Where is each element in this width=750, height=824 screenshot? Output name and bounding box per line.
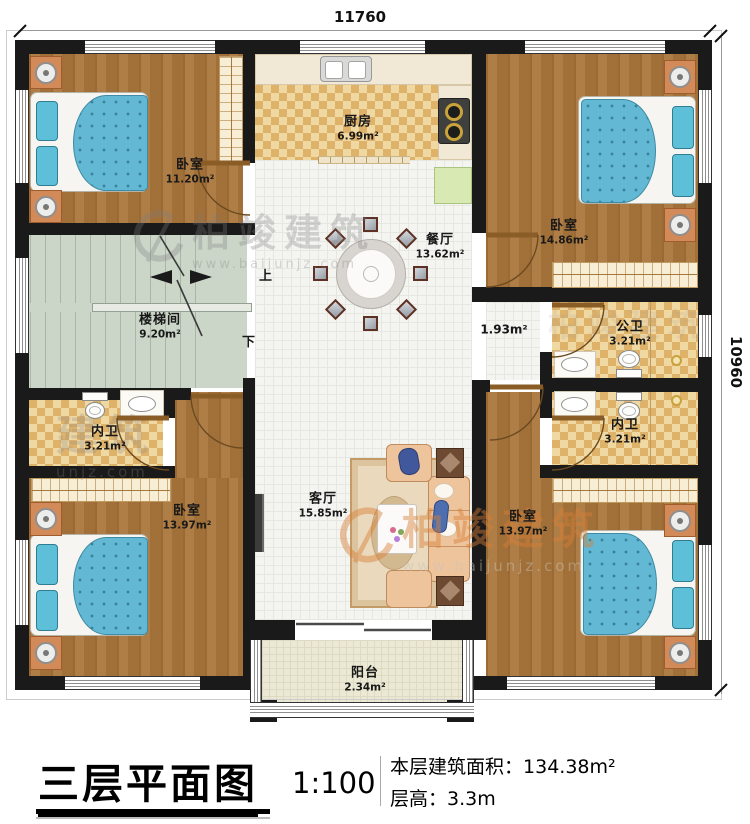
nightstand bbox=[664, 636, 696, 669]
room-label-bedroom-top-left: 卧室11.20m² bbox=[166, 157, 215, 186]
bath-sink bbox=[128, 396, 156, 412]
dining-cabinet bbox=[434, 167, 472, 204]
wall-bedroomTR-south bbox=[472, 287, 698, 302]
dimension-top-value: 11760 bbox=[334, 8, 386, 26]
bed-bottom-right bbox=[580, 530, 696, 636]
window-top-bedroomTR bbox=[525, 40, 665, 54]
floor-height-line: 层高：3.3m bbox=[390, 784, 496, 811]
toilet-tank bbox=[616, 392, 642, 401]
window-bottom-bedroomBR bbox=[507, 676, 655, 690]
shower-head bbox=[671, 355, 682, 366]
bed-bottom-left bbox=[30, 534, 148, 636]
side-table bbox=[436, 448, 464, 478]
nightstand bbox=[30, 190, 62, 223]
stair-handrail bbox=[92, 303, 252, 312]
wall-vestibuleR-west bbox=[472, 380, 486, 620]
kitchen-sink bbox=[320, 56, 372, 82]
stair-down-label: 下 bbox=[242, 335, 256, 351]
toilet-bowl bbox=[85, 402, 105, 419]
window-top-kitchen bbox=[300, 40, 425, 54]
floor-height-label: 层高： bbox=[390, 788, 447, 810]
dimension-line-top bbox=[20, 30, 712, 31]
window-left-bedroomBL bbox=[15, 540, 29, 625]
closet-bedroomBL bbox=[31, 478, 171, 502]
wall-living-south-right bbox=[432, 620, 486, 640]
room-label-bedroom-bottom-left: 卧室13.97m² bbox=[163, 503, 212, 532]
window-right-bedroomBR bbox=[698, 545, 712, 640]
room-label-balcony: 阳台2.34m² bbox=[344, 665, 385, 694]
room-label-living: 客厅15.85m² bbox=[299, 491, 348, 520]
closet-bedroomTL bbox=[219, 56, 243, 162]
bed-top-left bbox=[30, 92, 148, 192]
wall-bedroomTL-south bbox=[15, 223, 255, 235]
shower-partition bbox=[650, 392, 651, 465]
room-label-kitchen: 厨房6.99m² bbox=[337, 114, 378, 143]
window-bottom-bedroomBL bbox=[65, 676, 200, 690]
room-label-bath-inner-left: 内卫3.21m² bbox=[84, 424, 125, 453]
dining-table bbox=[336, 239, 406, 309]
nightstand bbox=[30, 636, 62, 670]
dining-chair bbox=[313, 266, 328, 281]
room-label-stairwell: 楼梯间9.20m² bbox=[139, 312, 181, 341]
room-label-bedroom-top-right: 卧室14.86m² bbox=[540, 218, 589, 247]
armchair bbox=[386, 570, 432, 608]
kitchen-stove bbox=[438, 98, 470, 144]
window-left-stairwell bbox=[15, 258, 29, 353]
bed-top-right bbox=[578, 96, 696, 204]
room-label-hallway: 1.93m² bbox=[480, 323, 527, 338]
wall-bathL-east-upper bbox=[163, 388, 175, 418]
wall-bathL-south bbox=[15, 466, 175, 478]
nightstand bbox=[664, 504, 696, 537]
kitchen-threshold bbox=[318, 156, 410, 164]
wall-bathR-west-lower bbox=[540, 392, 552, 418]
wall-bedroomBR-north bbox=[540, 465, 698, 478]
plan-scale: 1:100 bbox=[292, 766, 376, 800]
shower-head bbox=[671, 395, 682, 406]
closet-bedroomTR bbox=[552, 262, 698, 288]
tv bbox=[255, 494, 264, 552]
wall-kitchen-east bbox=[472, 54, 486, 233]
room-label-dining: 餐厅13.62m² bbox=[416, 232, 465, 261]
side-table bbox=[436, 576, 464, 606]
stair-up-label: 上 bbox=[259, 269, 273, 285]
floor-height-value: 3.3m bbox=[447, 788, 496, 810]
balcony-rail-right bbox=[462, 640, 474, 702]
dining-chair bbox=[363, 316, 378, 331]
bath-sink bbox=[561, 357, 588, 372]
nightstand bbox=[664, 60, 696, 94]
balcony-rail-left bbox=[250, 640, 262, 702]
floor-plan-page: 11760 10960 卧室11.20m² 厨房6.99m² 卧室14.86m²… bbox=[0, 0, 750, 824]
toilet-tank bbox=[82, 392, 108, 401]
title-underline-secondary bbox=[36, 817, 270, 819]
floor-area-label: 本层建筑面积： bbox=[390, 756, 523, 778]
dining-chair bbox=[413, 266, 428, 281]
plan-title: 三层平面图 bbox=[38, 750, 258, 817]
dimension-line-right bbox=[721, 36, 722, 694]
room-label-bath-inner-right: 内卫3.21m² bbox=[604, 417, 645, 446]
window-top-bedroomTL bbox=[85, 40, 215, 54]
nightstand bbox=[30, 56, 62, 89]
wall-bedroomTL-kitchen bbox=[243, 54, 255, 163]
room-label-bath-public: 公卫3.21m² bbox=[609, 319, 650, 348]
wall-bathR-west-mid bbox=[540, 352, 552, 378]
wall-living-west bbox=[243, 378, 255, 676]
window-right-bedroomTR bbox=[698, 90, 712, 183]
window-right-bath bbox=[698, 315, 712, 357]
nightstand bbox=[664, 208, 696, 242]
caption-separator bbox=[380, 756, 381, 806]
floor-area-value: 134.38m² bbox=[523, 756, 616, 778]
nightstand bbox=[30, 502, 62, 536]
window-left-bedroomTL bbox=[15, 90, 29, 183]
wall-vestibuleR-north-stub bbox=[472, 380, 490, 392]
dimension-right-value: 10960 bbox=[727, 336, 745, 388]
coffee-table bbox=[377, 504, 417, 554]
dining-chair bbox=[363, 217, 378, 232]
title-underline bbox=[36, 809, 270, 814]
floor-area-line: 本层建筑面积：134.38m² bbox=[390, 752, 616, 779]
closet-bedroomBR bbox=[552, 478, 698, 503]
wall-bath-divider bbox=[540, 378, 698, 392]
toilet-bowl bbox=[618, 350, 640, 368]
toilet-tank bbox=[616, 369, 642, 378]
bath-sink bbox=[561, 397, 588, 412]
room-label-bedroom-bottom-right: 卧室13.97m² bbox=[499, 509, 548, 538]
balcony-rail-bottom bbox=[250, 702, 474, 718]
